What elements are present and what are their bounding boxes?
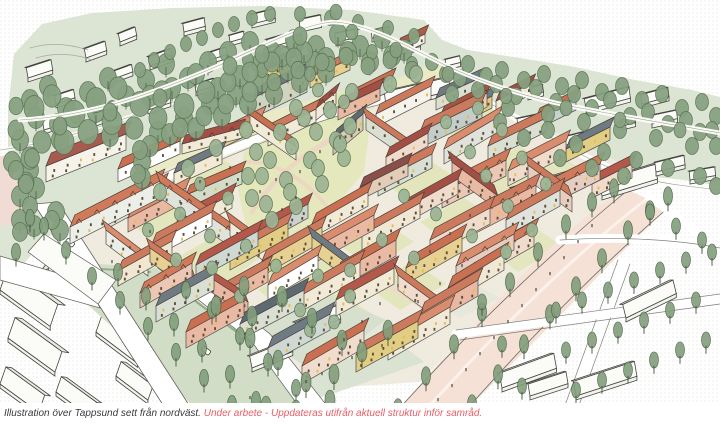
svg-text:Illustration över Tappsund set: Illustration över Tappsund sett från nor… (4, 407, 482, 419)
